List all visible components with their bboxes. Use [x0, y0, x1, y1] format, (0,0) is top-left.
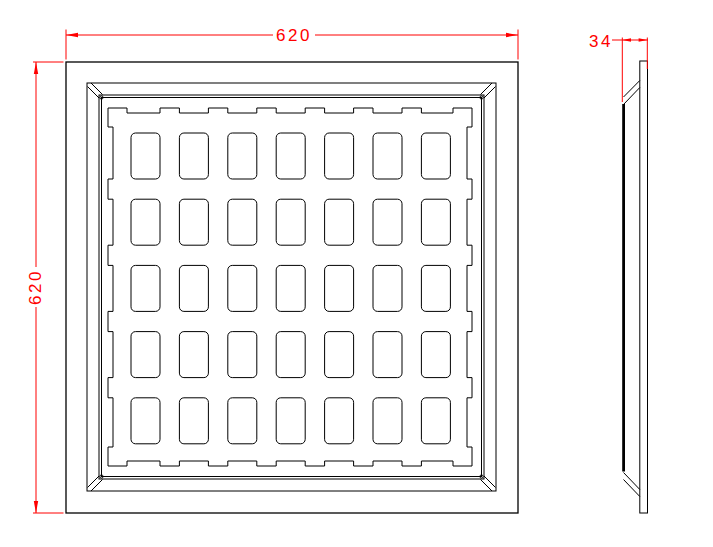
technical-drawing-canvas: 620 620 34 — [0, 0, 713, 547]
dimension-thickness-label: 34 — [589, 32, 613, 51]
dimension-width-label: 620 — [276, 26, 312, 45]
drawing-svg: 620 620 34 — [0, 0, 713, 547]
dimension-height-label: 620 — [26, 269, 45, 305]
drawing-background — [0, 0, 713, 547]
